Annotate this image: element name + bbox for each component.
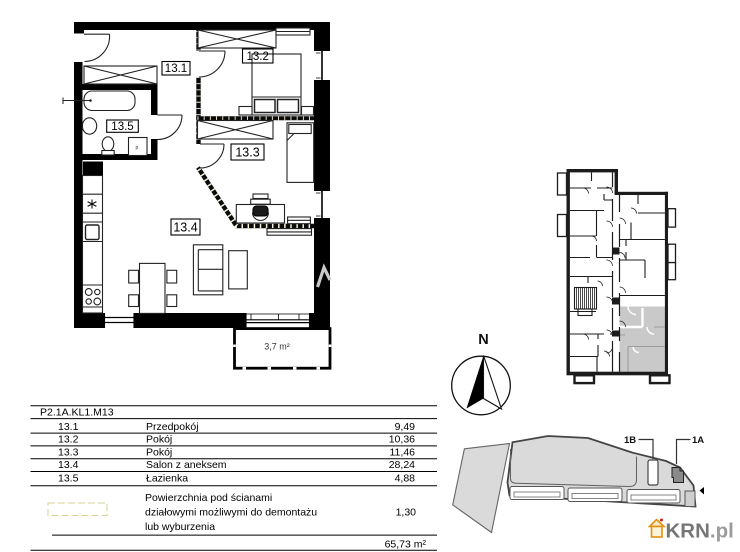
svg-text:1B: 1B bbox=[624, 435, 636, 446]
svg-text:13.2: 13.2 bbox=[247, 51, 269, 63]
svg-text:Pokój: Pokój bbox=[146, 446, 172, 458]
svg-text:P2.1A.KL1.M13: P2.1A.KL1.M13 bbox=[40, 407, 114, 419]
svg-text:Powierzchnia pod ścianami: Powierzchnia pod ścianami bbox=[145, 492, 272, 504]
svg-text:10,36: 10,36 bbox=[389, 434, 415, 446]
svg-text:Salon z aneksem: Salon z aneksem bbox=[146, 459, 227, 471]
svg-text:13.4: 13.4 bbox=[173, 221, 197, 235]
svg-text:3,7 m²: 3,7 m² bbox=[264, 342, 290, 352]
svg-text:Łazienka: Łazienka bbox=[146, 473, 188, 485]
svg-text:13.2: 13.2 bbox=[58, 434, 79, 446]
svg-text:KRN.pl: KRN.pl bbox=[666, 520, 734, 543]
svg-text:9,49: 9,49 bbox=[395, 421, 416, 433]
svg-text:p: p bbox=[136, 145, 139, 151]
svg-text:13.1: 13.1 bbox=[58, 421, 79, 433]
svg-text:28,24: 28,24 bbox=[389, 459, 415, 471]
svg-text:1,30: 1,30 bbox=[396, 506, 417, 518]
svg-text:lub wyburzenia: lub wyburzenia bbox=[145, 521, 215, 533]
svg-text:13.4: 13.4 bbox=[58, 459, 79, 471]
svg-text:Pokój: Pokój bbox=[146, 434, 172, 446]
svg-text:65,73 m²: 65,73 m² bbox=[385, 538, 427, 550]
svg-text:13.5: 13.5 bbox=[111, 121, 133, 133]
svg-text:4,88: 4,88 bbox=[395, 473, 416, 485]
svg-text:13.5: 13.5 bbox=[58, 473, 79, 485]
svg-text:N: N bbox=[478, 332, 488, 348]
svg-text:13.1: 13.1 bbox=[165, 63, 187, 75]
svg-text:13.3: 13.3 bbox=[58, 446, 79, 458]
svg-text:działowymi możliwymi do demont: działowymi możliwymi do demontażu bbox=[145, 506, 317, 518]
svg-text:11,46: 11,46 bbox=[390, 446, 416, 458]
svg-text:1A: 1A bbox=[692, 435, 704, 446]
svg-text:13.3: 13.3 bbox=[235, 146, 259, 160]
svg-text:Przedpokój: Przedpokój bbox=[146, 421, 199, 433]
